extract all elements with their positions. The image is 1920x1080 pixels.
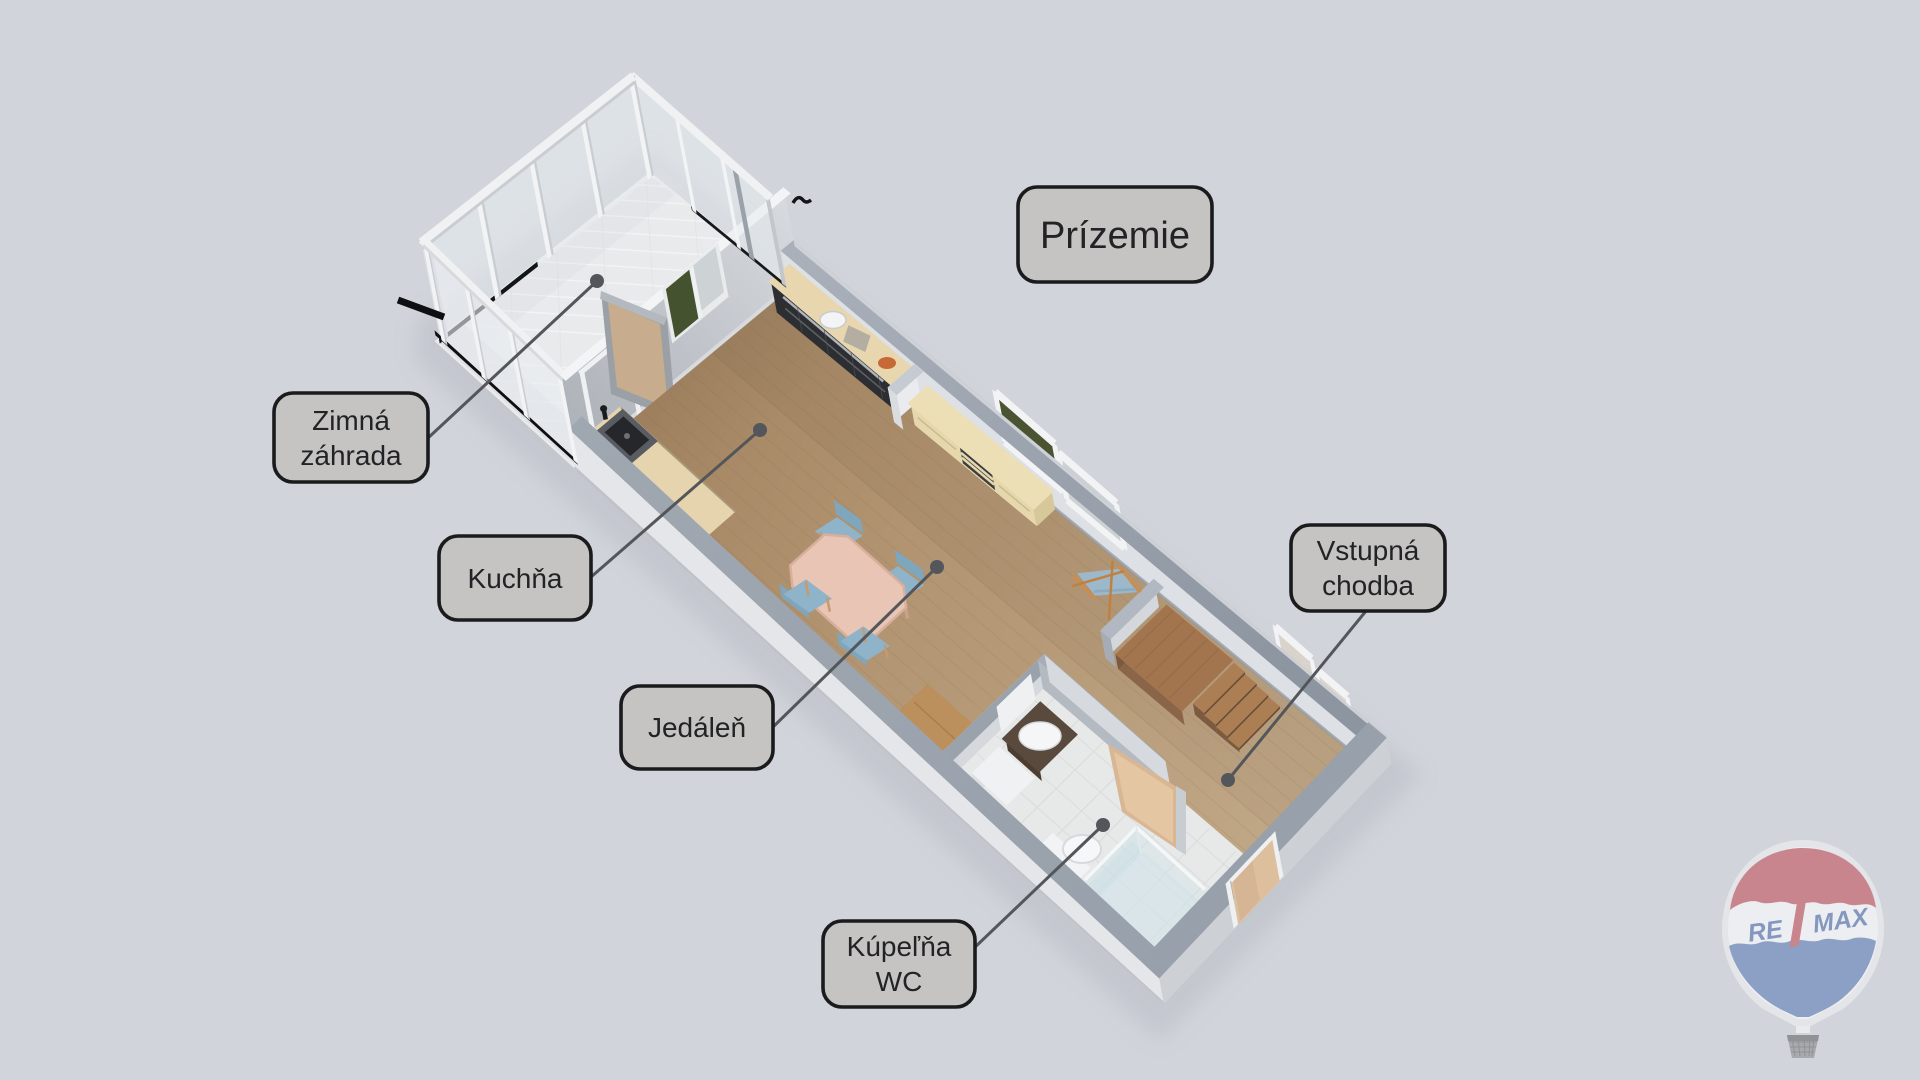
svg-text:Zimná: Zimná [312,405,390,436]
svg-text:Jedáleň: Jedáleň [648,712,746,743]
svg-text:Prízemie: Prízemie [1040,215,1190,257]
svg-text:Kuchňa: Kuchňa [468,563,563,594]
svg-text:chodba: chodba [1322,570,1414,601]
svg-text:Vstupná: Vstupná [1317,535,1420,566]
svg-text:WC: WC [876,966,923,997]
svg-text:záhrada: záhrada [300,440,402,471]
svg-text:RE: RE [1746,915,1786,948]
svg-text:Kúpeľňa: Kúpeľňa [847,931,952,962]
